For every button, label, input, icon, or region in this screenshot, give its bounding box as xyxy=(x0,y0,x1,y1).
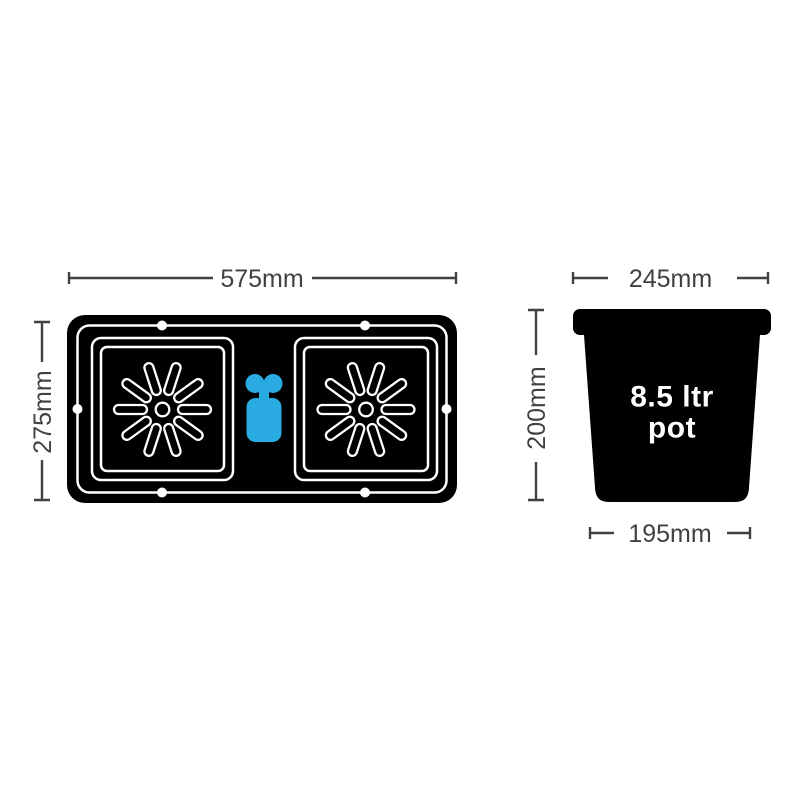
hole-dot-icon xyxy=(360,488,370,498)
pot-top-width-label: 245mm xyxy=(629,265,712,293)
pot-height-label: 200mm xyxy=(523,366,551,449)
pot-volume-label-line2: pot xyxy=(648,412,696,445)
tray-height-label: 275mm xyxy=(29,370,57,453)
diagram-canvas: 575mm 275mm xyxy=(0,0,800,800)
tray-top-view: 575mm 275mm xyxy=(29,265,457,503)
hole-dot-icon xyxy=(360,321,370,331)
hole-dot-icon xyxy=(157,488,167,498)
hole-dot-icon xyxy=(157,321,167,331)
hole-dot-icon xyxy=(442,404,452,414)
pot-base-width-label: 195mm xyxy=(628,520,711,548)
pot-volume-label-line1: 8.5 ltr xyxy=(630,381,714,414)
pot-lid xyxy=(573,309,771,335)
tray-width-label: 575mm xyxy=(220,265,303,293)
aquavalve-icon xyxy=(246,374,283,442)
hole-dot-icon xyxy=(73,404,83,414)
dimension-diagram: 575mm 275mm xyxy=(0,0,800,800)
pot-front-view: 245mm 200mm 8.5 ltr pot 195mm xyxy=(523,265,771,548)
